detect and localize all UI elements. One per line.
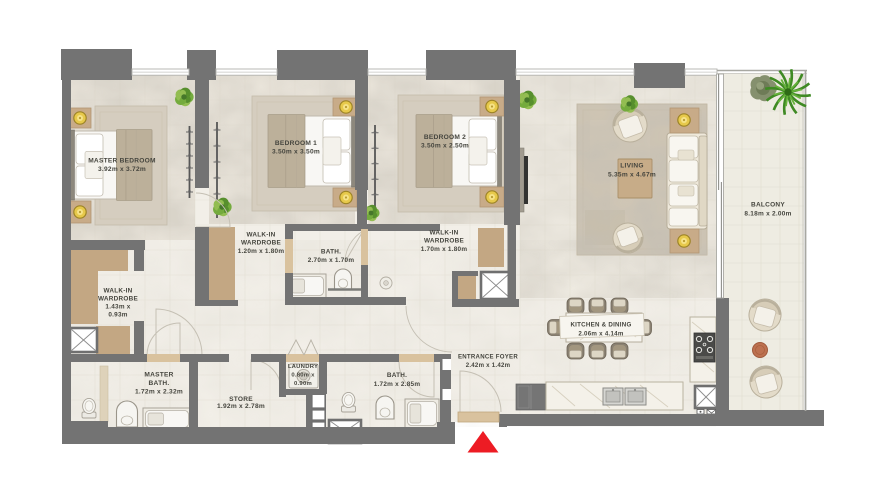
- svg-text:3.92m x 3.72m: 3.92m x 3.72m: [98, 166, 146, 173]
- svg-text:3.50m x 3.50m: 3.50m x 3.50m: [272, 149, 320, 156]
- svg-text:KITCHEN & DINING: KITCHEN & DINING: [570, 322, 631, 329]
- svg-text:WALK-IN: WALK-IN: [246, 232, 275, 239]
- svg-text:MASTER: MASTER: [144, 372, 173, 379]
- svg-text:WARDROBE: WARDROBE: [241, 240, 281, 247]
- svg-text:BATH.: BATH.: [149, 380, 170, 387]
- svg-text:MASTER BEDROOM: MASTER BEDROOM: [88, 158, 156, 165]
- svg-text:WALK-IN: WALK-IN: [429, 230, 458, 237]
- svg-text:0.80m x: 0.80m x: [291, 372, 315, 378]
- svg-text:WARDROBE: WARDROBE: [424, 238, 464, 245]
- svg-text:BEDROOM 2: BEDROOM 2: [424, 134, 466, 141]
- svg-text:1.92m x 2.78m: 1.92m x 2.78m: [217, 403, 265, 410]
- svg-text:2.42m x 1.42m: 2.42m x 1.42m: [466, 362, 511, 369]
- svg-text:1.72m x 2.85m: 1.72m x 2.85m: [374, 381, 421, 388]
- svg-text:8.18m x 2.00m: 8.18m x 2.00m: [744, 211, 791, 218]
- svg-text:1.20m x 1.80m: 1.20m x 1.80m: [238, 248, 285, 255]
- svg-text:WALK-IN: WALK-IN: [103, 288, 132, 295]
- svg-text:BATH.: BATH.: [321, 249, 341, 256]
- svg-text:1.70m x 1.80m: 1.70m x 1.80m: [421, 246, 468, 253]
- svg-text:2.06m x 4.14m: 2.06m x 4.14m: [578, 330, 623, 337]
- svg-text:5.35m x 4.67m: 5.35m x 4.67m: [608, 172, 656, 179]
- svg-text:BEDROOM 1: BEDROOM 1: [275, 140, 317, 147]
- svg-text:ENTRANCE FOYER: ENTRANCE FOYER: [458, 354, 518, 361]
- svg-text:1.43m x: 1.43m x: [105, 304, 130, 311]
- svg-text:0.90m: 0.90m: [294, 381, 312, 387]
- svg-text:LIVING: LIVING: [620, 163, 643, 170]
- svg-text:0.93m: 0.93m: [108, 312, 127, 319]
- svg-text:1.72m x 2.32m: 1.72m x 2.32m: [135, 388, 183, 395]
- svg-text:BALCONY: BALCONY: [751, 202, 785, 209]
- svg-text:BATH.: BATH.: [387, 372, 407, 379]
- svg-text:WARDROBE: WARDROBE: [98, 296, 138, 303]
- svg-text:2.70m x 1.70m: 2.70m x 1.70m: [308, 257, 355, 264]
- svg-text:3.50m x 2.50m: 3.50m x 2.50m: [421, 143, 469, 150]
- svg-text:LAUNDRY: LAUNDRY: [288, 364, 318, 370]
